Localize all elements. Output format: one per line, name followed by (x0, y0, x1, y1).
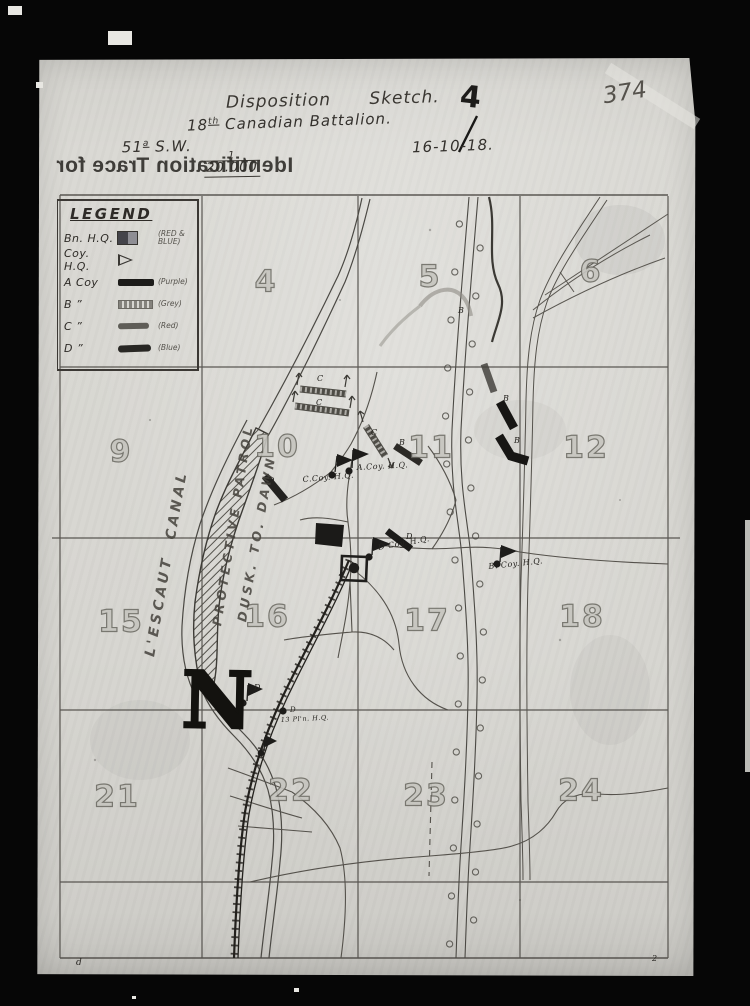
film-speck (36, 82, 43, 88)
battalion-number: 18 (187, 116, 209, 135)
legend-note: (Red) (158, 322, 178, 330)
legend-title: LEGEND (70, 205, 193, 223)
sheet-quadrant: S.W. (149, 137, 192, 156)
film-speck (294, 988, 299, 992)
mirrored-bleedthrough-text: Identification Trace for (56, 154, 293, 178)
legend-row-d-coy: D ” (Blue) (64, 337, 193, 359)
copy-number: 4 (458, 79, 482, 116)
b-coy-bar-swatch (118, 300, 153, 309)
film-speck (132, 996, 136, 999)
legend-label: A Coy (64, 276, 118, 289)
legend-row-a-coy: A Coy (Purple) (64, 271, 193, 293)
legend-label: Bn. H.Q. (64, 232, 118, 245)
legend-label: Coy. H.Q. (64, 247, 118, 273)
sketch-date: 16-10-18. (412, 136, 494, 157)
grid-square-label-5: 5 (419, 260, 442, 295)
grid-square-label-11: 11 (408, 431, 454, 466)
d-platoon-letter: D (406, 532, 413, 541)
film-speck (108, 31, 132, 45)
legend-note: (Grey) (158, 300, 182, 308)
grid-square-label-21: 21 (94, 780, 140, 815)
microfilm-frame: Disposition Sketch. 4 18th Canadian Batt… (0, 0, 750, 1006)
a-coy-bar-swatch (118, 279, 154, 286)
grid-square-label-4: 4 (255, 265, 278, 300)
c-coy-bar-swatch (118, 323, 149, 330)
c-platoon-letter: C (316, 398, 323, 407)
grid-square-label-12: 12 (563, 431, 609, 466)
legend-row-b-coy: B ” (Grey) (64, 293, 193, 315)
grid-square-label-15: 15 (98, 605, 144, 640)
adjacent-frame-edge (745, 520, 750, 772)
d-platoon-letter: D (268, 476, 275, 485)
north-indicator: N (181, 666, 254, 737)
bn-hq-symbol-swatch (118, 232, 137, 244)
legend-label: B ” (64, 298, 118, 311)
grid-square-label-18: 18 (559, 600, 605, 635)
c-platoon-letter: C (317, 374, 324, 383)
legend-note: (Blue) (158, 344, 180, 352)
legend-label: D ” (64, 342, 118, 355)
coy-hq-flag-swatch (118, 254, 133, 266)
grid-square-label-23: 23 (403, 779, 449, 814)
legend-note: (Purple) (158, 278, 188, 286)
grid-square-label-6: 6 (580, 255, 603, 290)
grid-square-label-24: 24 (558, 774, 604, 809)
grid-square-label-17: 17 (404, 604, 450, 639)
legend-label: C ” (64, 320, 118, 333)
legend-row-c-coy: C ” (Red) (64, 315, 193, 337)
d-platoon-letter: D (290, 706, 296, 714)
c-platoon-letter: C (371, 428, 378, 437)
b-platoon-letter: B (458, 306, 464, 315)
legend-row-bn-hq: Bn. H.Q. (RED & BLUE) (64, 227, 193, 249)
b-platoon-letter: B (514, 436, 520, 445)
map-sheet-paper (36, 58, 696, 976)
grid-square-label-22: 22 (268, 774, 314, 809)
legend-box: LEGEND Bn. H.Q. (RED & BLUE) Coy. H.Q. A… (57, 199, 199, 371)
d-platoon-letter: D (254, 683, 261, 692)
d-coy-bar-swatch (118, 344, 151, 352)
b-platoon-letter: B (399, 438, 405, 447)
legend-note: (RED & BLUE) (158, 230, 185, 246)
battalion-ordinal: th (208, 116, 220, 126)
legend-row-coy-hq: Coy. H.Q. (64, 249, 193, 271)
margin-mark-left: d (76, 958, 82, 968)
grid-square-label-9: 9 (110, 435, 133, 470)
margin-mark-right: 2 (652, 954, 658, 963)
film-speck (8, 6, 22, 15)
b-platoon-letter: B (503, 394, 509, 403)
